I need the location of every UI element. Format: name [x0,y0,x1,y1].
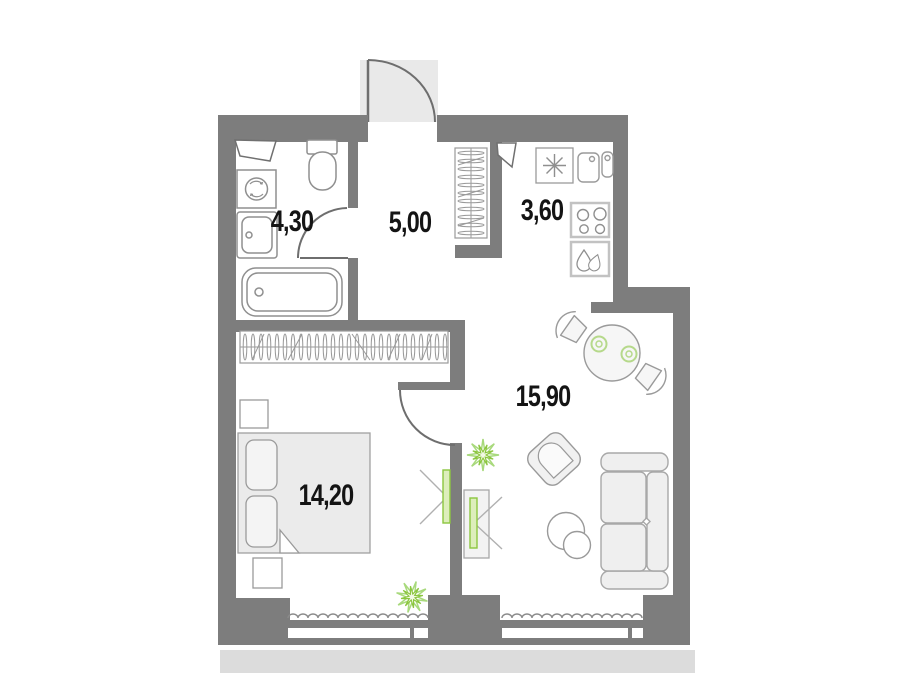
fridge-icon [536,148,573,183]
bedroom-door [400,390,455,445]
nightstand-icon [240,400,268,428]
room-label-bathroom: 4,30 [271,205,313,239]
entrance-door [360,60,438,122]
dining-chair-icon [550,307,590,349]
room-label-living-room: 15,90 [516,380,571,414]
room-label-bedroom: 14,20 [299,479,354,513]
tv-stand-icon [464,490,502,558]
bathtub-icon [242,268,342,316]
tv-bedroom-icon [420,470,450,524]
window-living-vent [632,628,643,638]
wardrobe-bedroom-icon [240,331,448,363]
coffee-table-icon [564,532,591,559]
kitchen-sink-icon [578,152,613,182]
sofa-icon [601,453,668,589]
nightstand-icon [253,558,282,588]
wardrobe-hallway-icon [455,148,487,238]
toilet-icon [307,140,337,190]
plant-icon [467,439,499,471]
washing-machine-icon [237,170,276,208]
dining-table-icon [584,325,640,381]
tv-living-icon [470,498,477,548]
dishwasher-icon [571,242,609,276]
terrace-band [220,650,695,673]
radiator-living-icon [502,614,642,618]
room-label-hallway: 5,00 [389,206,431,240]
radiator-bedroom-icon [288,614,428,618]
vent-duct-icon [235,140,276,161]
floor-plan: 4,30 5,00 3,60 15,90 14,20 [0,0,900,675]
armchair-icon [524,429,585,490]
window-bedroom [288,628,410,638]
window-living [502,628,628,638]
floor-plan-drawing [0,0,900,675]
window-bedroom-vent [414,628,428,638]
plant-icon [392,577,431,616]
room-label-kitchen: 3,60 [521,194,563,228]
stove-icon [571,203,609,237]
